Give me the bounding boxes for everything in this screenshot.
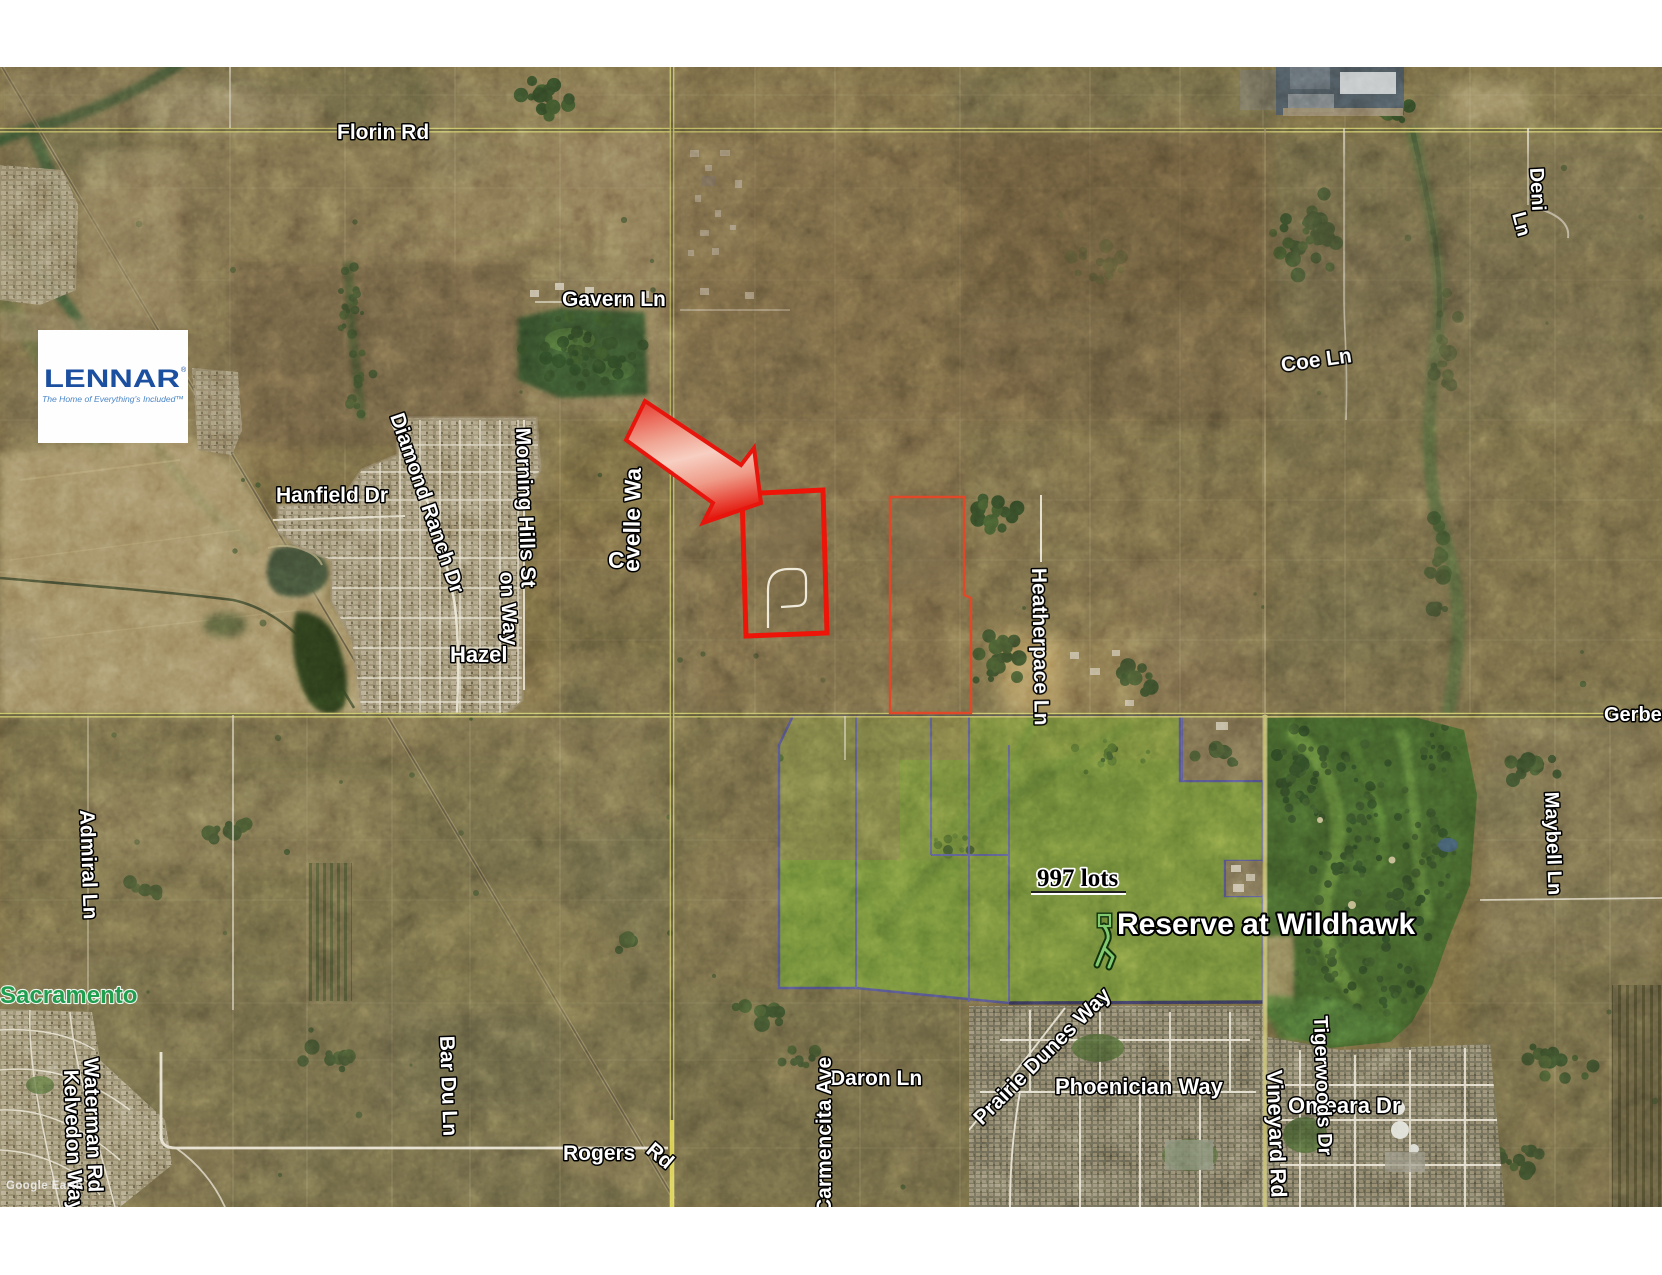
svg-text:Reserve at Wildhawk: Reserve at Wildhawk (1117, 908, 1415, 941)
svg-text:Deni: Deni (1525, 167, 1549, 211)
svg-text:Gerber R: Gerber R (1604, 704, 1662, 726)
svg-text:LENNAR: LENNAR (44, 365, 180, 393)
svg-text:Daron Ln: Daron Ln (830, 1067, 922, 1090)
svg-text:Google Earth: Google Earth (6, 1180, 83, 1192)
svg-text:Hazel: Hazel (450, 642, 507, 667)
svg-text:Heatherpace Ln: Heatherpace Ln (1027, 568, 1053, 726)
svg-text:evelle Wa: evelle Wa (618, 467, 646, 572)
svg-text:Rogers: Rogers (563, 1142, 635, 1165)
svg-text:Florin Rd: Florin Rd (337, 121, 429, 144)
svg-text:Omeara Dr: Omeara Dr (1288, 1093, 1401, 1118)
svg-text:The Home of Everything’s Inclu: The Home of Everything’s Included™ (42, 394, 184, 404)
svg-text:Admiral Ln: Admiral Ln (75, 809, 102, 919)
svg-text:on Way: on Way (495, 571, 522, 646)
svg-text:997 lots: 997 lots (1037, 865, 1119, 892)
svg-text:Sacramento: Sacramento (0, 982, 137, 1009)
svg-text:Hanfield Dr: Hanfield Dr (276, 484, 388, 507)
svg-text:Carmencita Ave: Carmencita Ave (813, 1057, 836, 1214)
svg-text:Gavern Ln: Gavern Ln (562, 288, 666, 311)
svg-text:Phoenician Way: Phoenician Way (1055, 1074, 1224, 1099)
svg-text:Vineyard Rd: Vineyard Rd (1262, 1069, 1291, 1198)
svg-text:Maybell Ln: Maybell Ln (1540, 791, 1566, 895)
svg-text:Bar Du Ln: Bar Du Ln (435, 1035, 461, 1136)
svg-text:®: ® (181, 366, 187, 374)
